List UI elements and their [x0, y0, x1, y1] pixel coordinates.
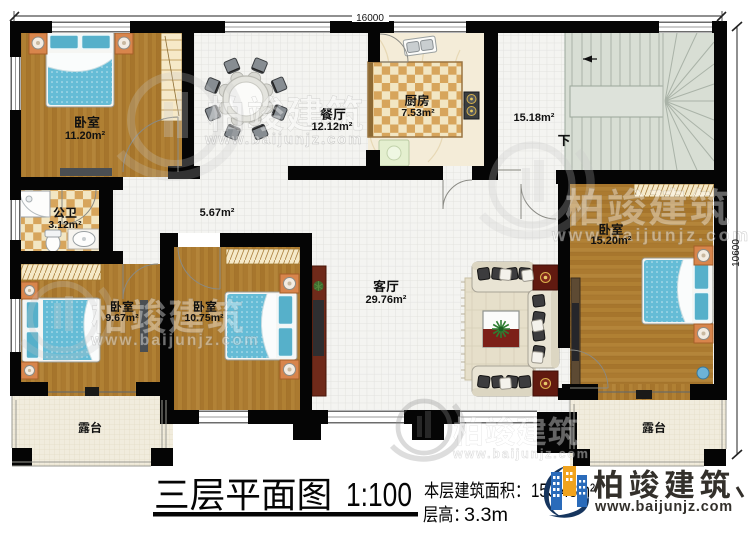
- svg-text:15.18m²: 15.18m²: [514, 112, 555, 124]
- svg-text:29.76m²: 29.76m²: [366, 294, 407, 306]
- svg-text:10.75m²: 10.75m²: [184, 312, 224, 324]
- svg-text:9.67m²: 9.67m²: [105, 312, 139, 324]
- svg-text:www.baijunjz.com: www.baijunjz.com: [90, 332, 260, 349]
- svg-text:11.20m²: 11.20m²: [65, 130, 106, 142]
- svg-text:1:100: 1:100: [346, 476, 412, 513]
- svg-text:www.baijunjz.com: www.baijunjz.com: [551, 225, 750, 245]
- svg-text:16000: 16000: [356, 13, 384, 24]
- svg-text:3.3m: 3.3m: [464, 505, 508, 526]
- svg-text:12.12m²: 12.12m²: [312, 121, 353, 133]
- svg-text:www.baijunjz.com: www.baijunjz.com: [452, 447, 590, 461]
- svg-text:10600: 10600: [731, 239, 742, 267]
- svg-text:7.53m²: 7.53m²: [401, 107, 435, 119]
- svg-text:3.12m²: 3.12m²: [48, 219, 82, 231]
- svg-text:15.20m²: 15.20m²: [591, 235, 632, 247]
- svg-text:www.baijunjz.com: www.baijunjz.com: [204, 131, 363, 148]
- svg-text:www.baijunjz.com: www.baijunjz.com: [594, 499, 733, 515]
- svg-text:5.67m²: 5.67m²: [200, 207, 235, 219]
